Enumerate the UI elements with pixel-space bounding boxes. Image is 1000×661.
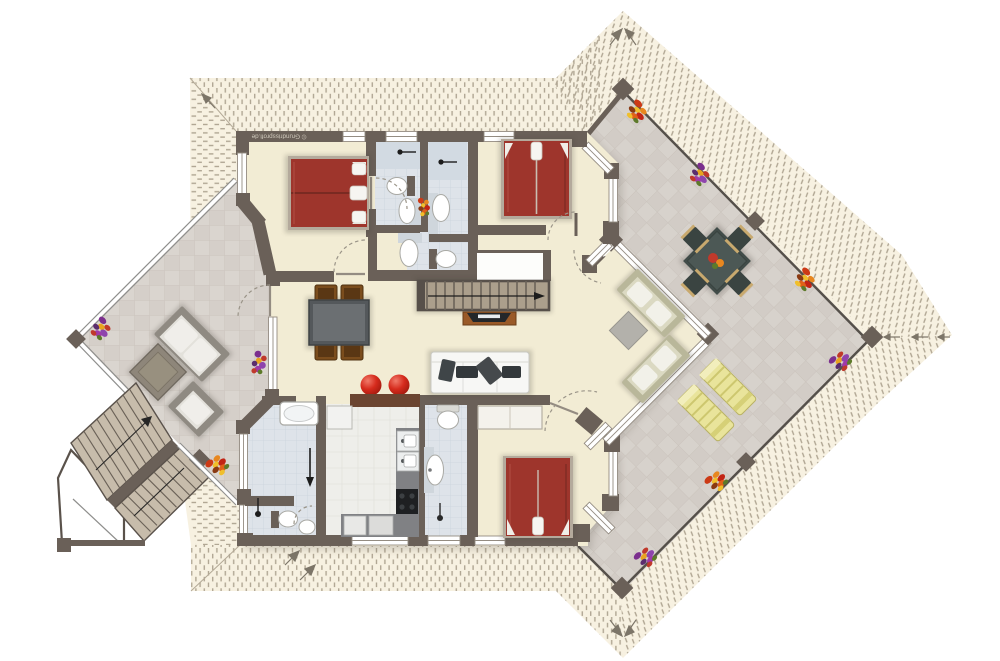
svg-text:© Grundrissprofi.de: © Grundrissprofi.de xyxy=(251,133,306,141)
